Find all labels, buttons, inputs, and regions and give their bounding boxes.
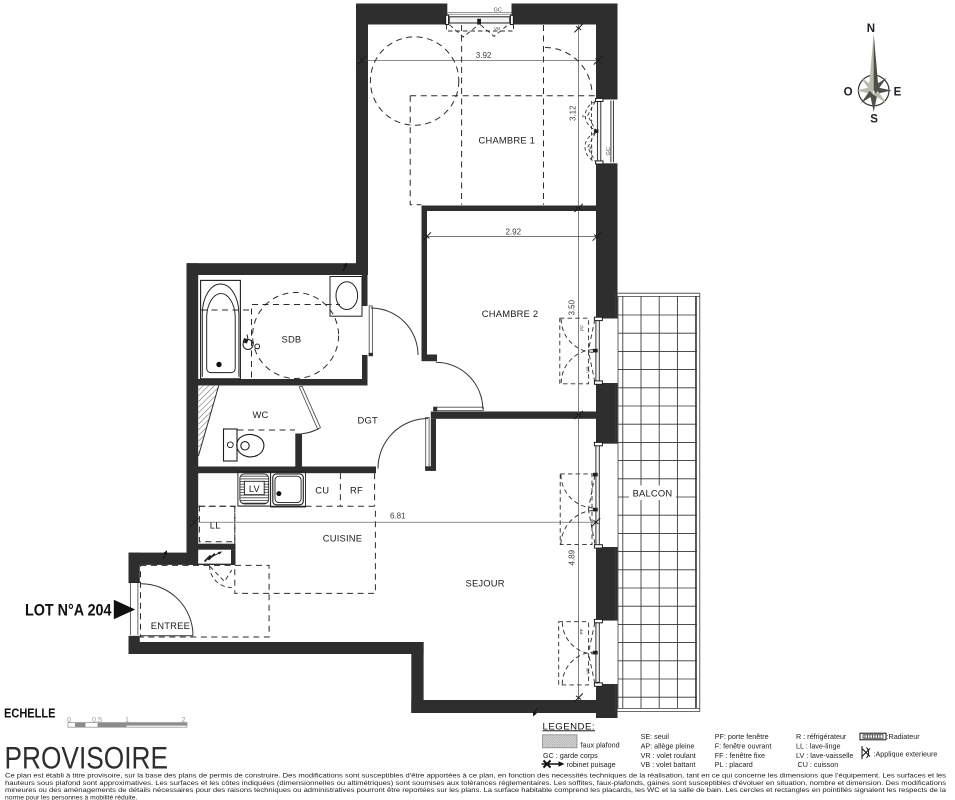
svg-text:hauteurs sous plafond sont app: hauteurs sous plafond sont approximative… <box>5 780 947 787</box>
svg-text:Ce plan est établi à titre pro: Ce plan est établi à titre provisoire, s… <box>5 773 947 780</box>
svg-text:mineures ou des aménagements d: mineures ou des aménagements de détails … <box>5 787 946 794</box>
svg-text:norme pour les personnes à mob: norme pour les personnes à mobilité rédu… <box>5 794 137 800</box>
